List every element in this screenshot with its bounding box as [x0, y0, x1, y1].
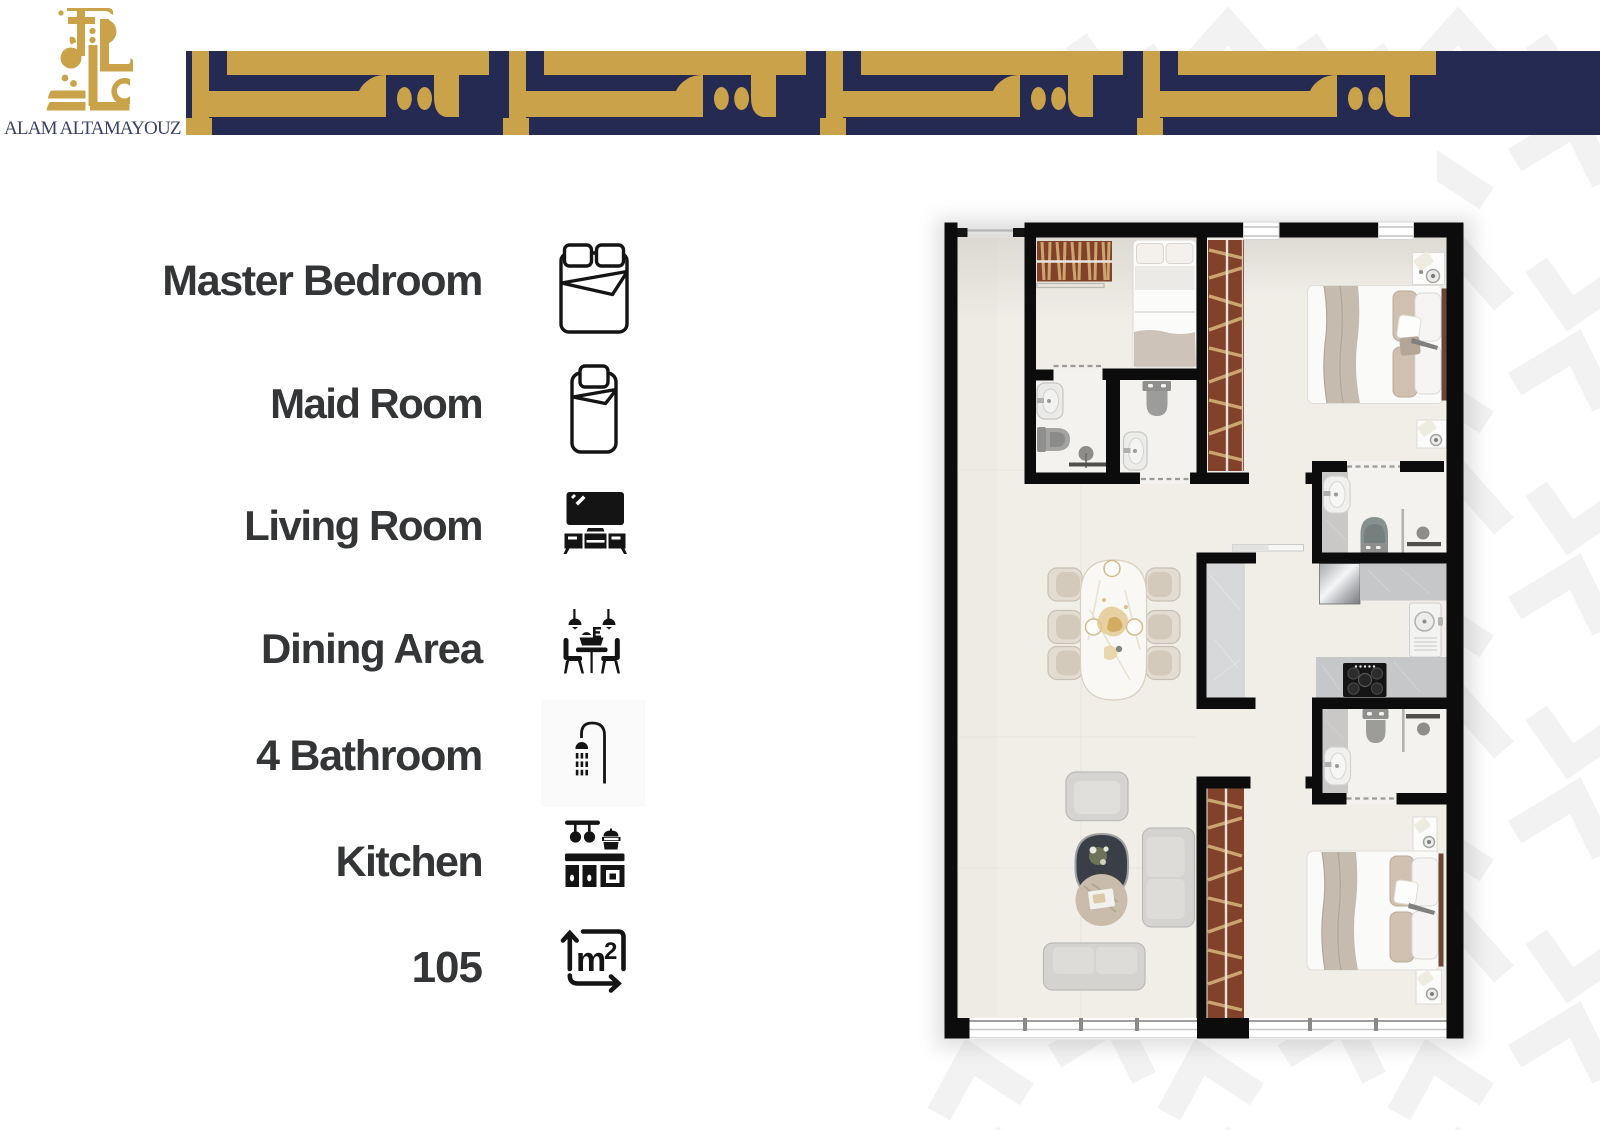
- svg-text:105: 105: [412, 943, 483, 992]
- svg-text:ALAM ALTAMAYOUZ: ALAM ALTAMAYOUZ: [4, 118, 181, 139]
- svg-text:2: 2: [604, 938, 617, 965]
- svg-text:Kitchen: Kitchen: [336, 838, 482, 886]
- svg-text:Master Bedroom: Master Bedroom: [162, 257, 482, 305]
- svg-text:Dining Area: Dining Area: [261, 625, 484, 672]
- svg-text:m: m: [576, 941, 606, 979]
- svg-text:4 Bathroom: 4 Bathroom: [256, 732, 482, 780]
- svg-text:Living Room: Living Room: [244, 502, 482, 549]
- svg-text:Maid Room: Maid Room: [270, 380, 482, 427]
